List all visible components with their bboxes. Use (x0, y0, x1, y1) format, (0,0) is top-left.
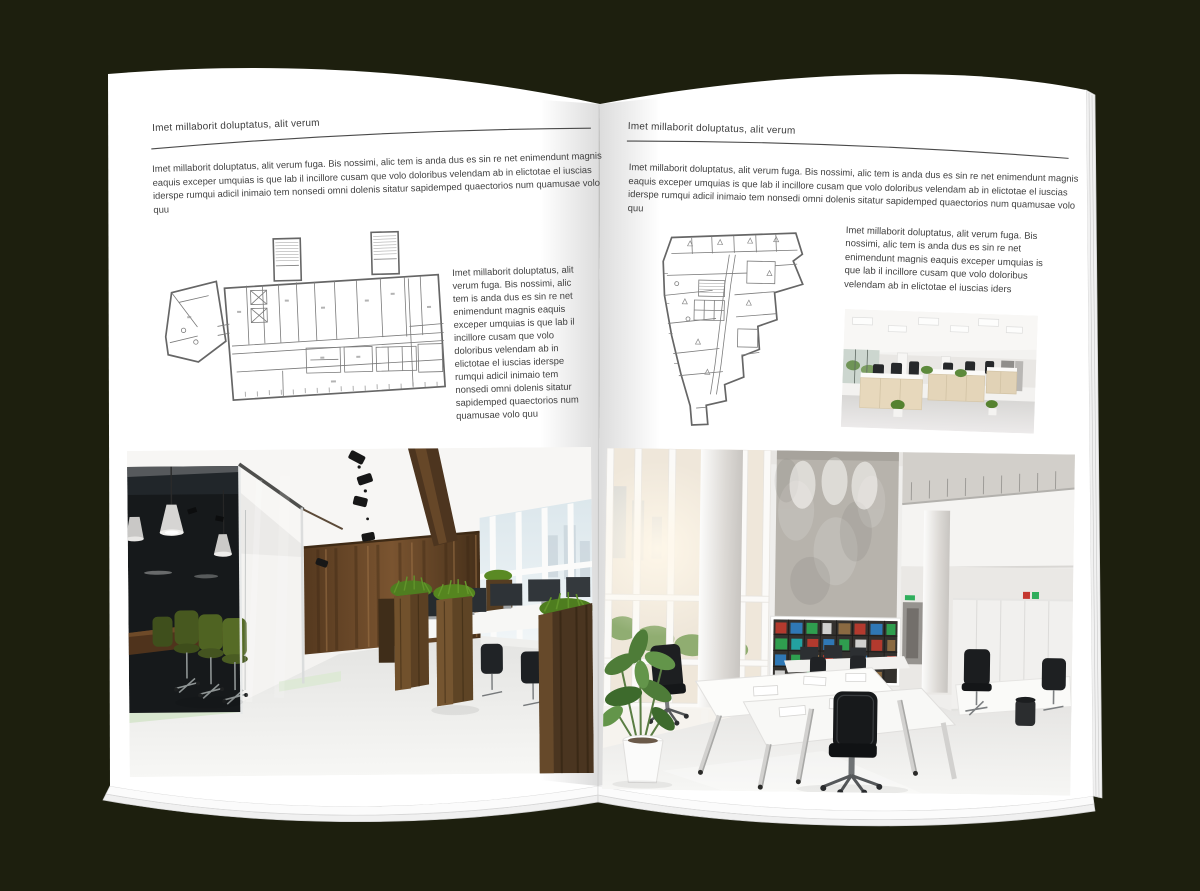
left-column-text: Imet millaborit doluptatus, alit verum f… (452, 263, 582, 422)
right-block-text: Imet millaborit doluptatus, alit verum f… (844, 224, 1046, 298)
right-small-photo-office (841, 309, 1038, 434)
magazine-mockup: Imet millaborit doluptatus, alit verum I… (0, 0, 1200, 891)
left-photo-dark-office (127, 447, 594, 777)
right-photo-bright-office (602, 448, 1075, 796)
right-floor-plan (644, 223, 840, 430)
left-floor-plan (157, 225, 454, 417)
